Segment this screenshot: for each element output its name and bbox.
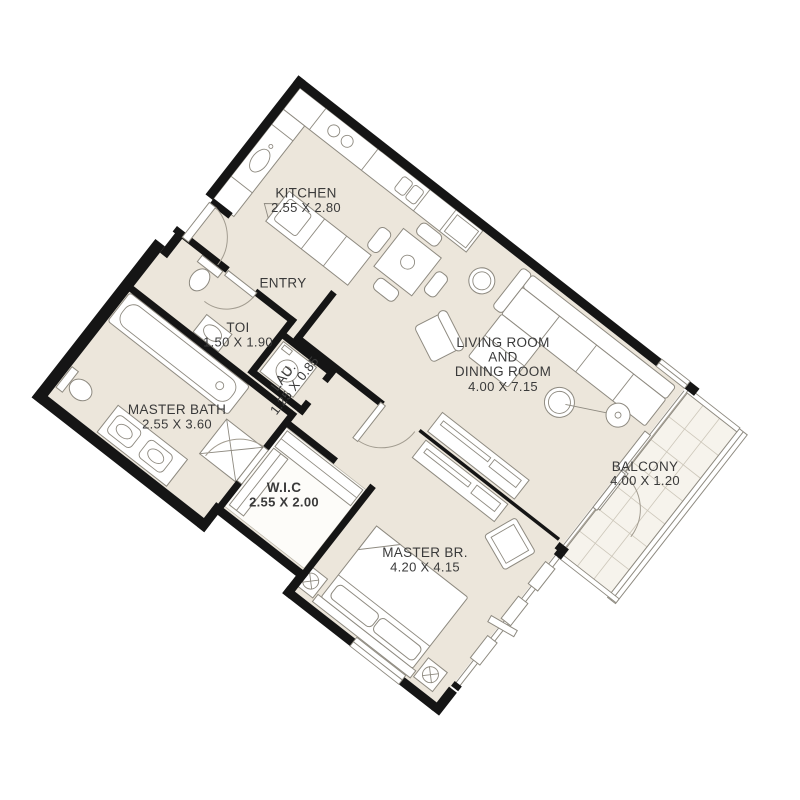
floor-plan-canvas: KITCHEN 2.55 X 2.80 ENTRY TOI 1.50 X 1.9…	[0, 0, 800, 800]
living-label-line1: LIVING ROOM	[456, 335, 549, 350]
master-bath-label: MASTER BATH	[128, 402, 226, 417]
living-dims: 4.00 X 7.15	[468, 379, 538, 394]
living-label-line2: AND	[488, 350, 517, 365]
entry-label: ENTRY	[259, 276, 306, 291]
master-br-dims: 4.20 X 4.15	[390, 560, 460, 575]
balcony-dims: 4.00 X 1.20	[610, 473, 680, 488]
balcony-label: BALCONY	[612, 459, 679, 474]
living-label-line3: DINING ROOM	[455, 364, 551, 379]
master-br-label: MASTER BR.	[382, 545, 468, 560]
kitchen-dims: 2.55 X 2.80	[271, 200, 341, 215]
master-bath-dims: 2.55 X 3.60	[142, 417, 212, 432]
kitchen-label: KITCHEN	[275, 186, 336, 201]
floor-plan-page: KITCHEN 2.55 X 2.80 ENTRY TOI 1.50 X 1.9…	[0, 0, 800, 800]
wic-dims: 2.55 X 2.00	[249, 495, 319, 510]
toi-dims: 1.50 X 1.90	[203, 335, 273, 350]
wic-label: W.I.C	[267, 480, 302, 495]
toi-label: TOI	[226, 320, 249, 335]
